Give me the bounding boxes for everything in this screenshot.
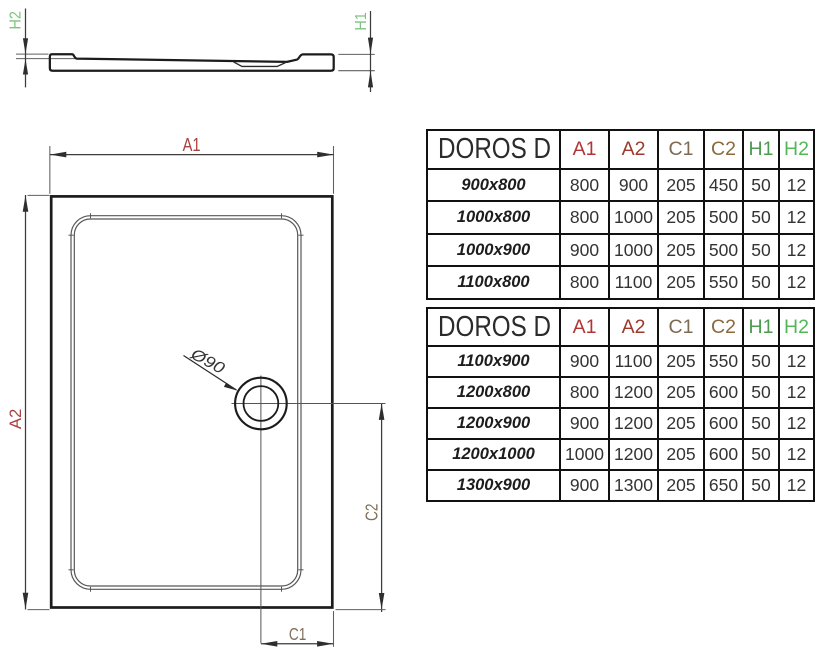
- svg-text:H2: H2: [8, 11, 25, 30]
- svg-text:C2: C2: [362, 504, 382, 522]
- svg-text:A1: A1: [183, 135, 201, 155]
- svg-text:H1: H1: [353, 12, 370, 31]
- svg-text:Ø90: Ø90: [187, 345, 227, 377]
- svg-text:A2: A2: [6, 409, 25, 430]
- svg-text:C1: C1: [289, 624, 307, 644]
